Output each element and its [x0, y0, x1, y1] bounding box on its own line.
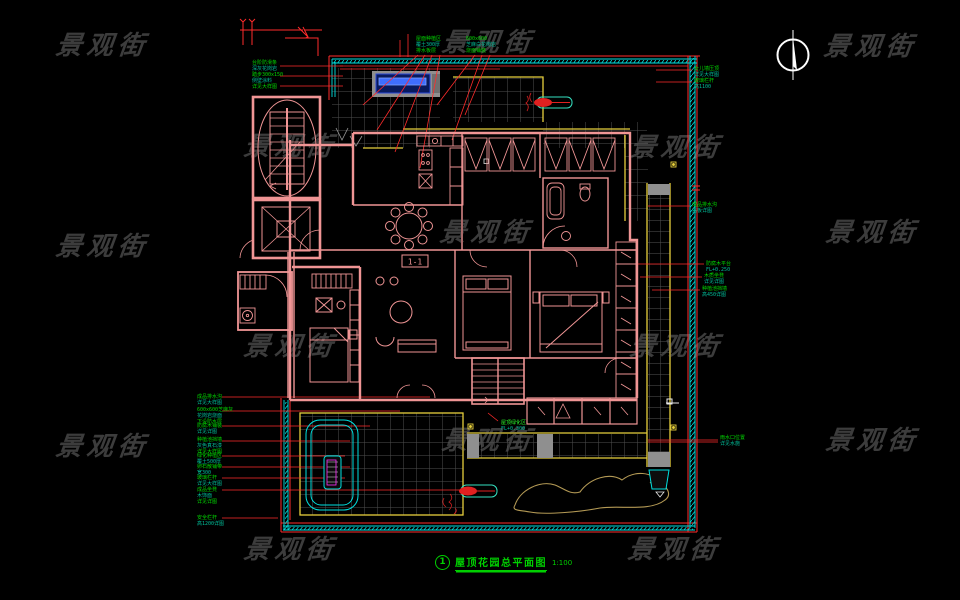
terrace-bench [324, 456, 341, 489]
watermark-text: 景观街 [822, 34, 918, 60]
bathroom [547, 183, 590, 241]
dining-table [386, 203, 433, 250]
watermark-text: 景观街 [824, 428, 920, 454]
annotation-note-top-1: 屋面种植区覆土300厚排水板层 [416, 36, 441, 54]
watermark-text: 景观街 [54, 234, 150, 260]
annotation-note-top-2: 600x600芝麻白花岗岩烧面铺装 [466, 36, 496, 54]
watermark-text: 景观街 [242, 537, 338, 563]
cad-roof-plan-canvas: 1-1 景观街景观街 [0, 0, 960, 600]
planter-row [527, 398, 637, 424]
watermark-text: 景观街 [242, 134, 338, 160]
watermark-text: 景观街 [824, 220, 920, 246]
annotation-note-left-3: 防腐木铺装详见详图 [197, 423, 222, 435]
landscape-contour [514, 473, 668, 513]
annotation-note-terrace: 屋顶绿化区FL+0.300 [501, 420, 526, 432]
bedrooms [310, 276, 609, 382]
annotation-note-right-2: 玻璃栏杆高1100 [694, 78, 714, 90]
corner-planter [649, 470, 669, 497]
apartment-walls [288, 133, 637, 400]
watermark-text: 景观街 [628, 334, 724, 360]
watermark-text: 景观街 [438, 220, 534, 246]
annotation-note-right-1: 女儿墙压顶详见大样图 [694, 66, 719, 78]
utility-room [238, 272, 292, 330]
annotation-note-right-6: 种植池挡墙高450详图 [702, 286, 727, 298]
annotation-note-stair: 台阶防滑条深灰花岗岩踏步300x150侧壁涂料详见大样图 [252, 60, 283, 90]
annotation-note-right-5: 木质坐凳详见详图 [704, 273, 724, 285]
floor-plan-drawing: 1-1 [0, 0, 960, 600]
annotation-note-left-1: 成品排水沟详见大样图 [197, 394, 222, 406]
drawing-title: 屋顶花园总平面图 [455, 554, 547, 571]
interior-stair [472, 358, 524, 404]
annotation-note-right-7: 雨水口位置详见水施 [720, 435, 745, 447]
watermark-text: 景观街 [54, 434, 150, 460]
drawing-scale: 1:100 [552, 559, 572, 567]
detail-number-bubble: 1 [435, 555, 450, 570]
annotation-note-right-3: 成品排水沟盖板详图 [692, 202, 717, 214]
section-tag: 1-1 [402, 255, 428, 267]
kitchen [417, 136, 463, 205]
drawing-title-block: 1 屋顶花园总平面图 1:100 [435, 554, 572, 571]
annotation-note-left-8: 成品坐凳木饰面详见详图 [197, 487, 217, 505]
watermark-text: 景观街 [242, 334, 338, 360]
svg-text:1-1: 1-1 [408, 258, 423, 267]
annotation-note-left-7: 玻璃栏杆详见大样图 [197, 475, 222, 487]
living-room [376, 277, 436, 352]
watermark-text: 景观街 [626, 537, 722, 563]
watermark-text: 景观街 [628, 135, 724, 161]
north-arrow-icon [778, 30, 809, 80]
annotation-note-left-9: 安全栏杆高1200详图 [197, 515, 224, 527]
annotation-note-right-4: 防腐木平台FL+0.250 [706, 261, 731, 273]
watermark-text: 景观街 [54, 33, 150, 59]
